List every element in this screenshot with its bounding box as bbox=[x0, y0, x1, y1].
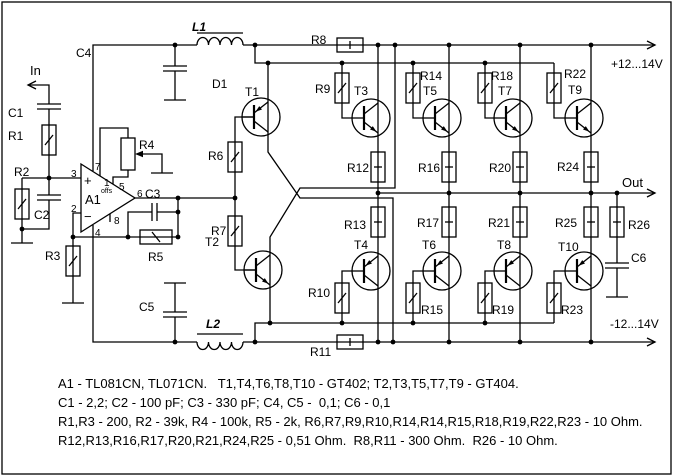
label-t9: T9 bbox=[568, 83, 582, 97]
label-r10: R10 bbox=[308, 286, 330, 300]
opamp-pin4: 4 bbox=[95, 228, 101, 239]
label-r24: R24 bbox=[557, 160, 579, 174]
amplifier-schematic: In Out +12...14V -12...14V C1 R1 R2 C2 R… bbox=[0, 0, 673, 476]
label-c6: C6 bbox=[631, 251, 647, 265]
label-r14: R14 bbox=[420, 69, 442, 83]
label-r1: R1 bbox=[8, 129, 24, 143]
opamp-pin3: 3 bbox=[71, 169, 77, 180]
parts-list-line1: A1 - TL081CN, TL071CN. T1,T4,T6,T8,T10 -… bbox=[58, 376, 519, 391]
label-a1: A1 bbox=[85, 192, 101, 207]
label-r22: R22 bbox=[564, 67, 586, 81]
label-t3: T3 bbox=[354, 84, 368, 98]
label-r5: R5 bbox=[148, 250, 164, 264]
label-r13: R13 bbox=[344, 218, 366, 232]
label-c1: C1 bbox=[8, 106, 24, 120]
label-r18: R18 bbox=[491, 69, 513, 83]
input-port-label: In bbox=[30, 63, 41, 78]
label-t6: T6 bbox=[422, 238, 436, 252]
label-r25: R25 bbox=[555, 216, 577, 230]
label-t5: T5 bbox=[423, 84, 437, 98]
label-r20: R20 bbox=[489, 161, 511, 175]
negative-supply-label: -12...14V bbox=[610, 317, 659, 331]
output-port-label: Out bbox=[622, 175, 643, 190]
opamp-pin6: 6 bbox=[137, 189, 143, 200]
label-r23: R23 bbox=[561, 303, 583, 317]
label-l1: L1 bbox=[192, 20, 206, 34]
opamp-pin5: 5 bbox=[119, 182, 125, 193]
label-r4: R4 bbox=[139, 138, 155, 152]
label-l2: L2 bbox=[206, 317, 220, 331]
label-r26: R26 bbox=[628, 218, 650, 232]
parts-list-line4: R12,R13,R16,R17,R20,R21,R24,R25 - 0,51 O… bbox=[58, 433, 558, 448]
label-r15: R15 bbox=[421, 303, 443, 317]
label-r17: R17 bbox=[417, 216, 439, 230]
label-r8: R8 bbox=[311, 33, 327, 47]
label-r16: R16 bbox=[418, 161, 440, 175]
label-r21: R21 bbox=[488, 216, 510, 230]
label-r3: R3 bbox=[45, 249, 61, 263]
label-c2: C2 bbox=[34, 208, 50, 222]
label-r9: R9 bbox=[315, 82, 331, 96]
label-t7: T7 bbox=[498, 84, 512, 98]
schematic-page: In Out +12...14V -12...14V C1 R1 R2 C2 R… bbox=[0, 0, 673, 476]
label-t2: T2 bbox=[205, 235, 219, 249]
opamp-pin2: 2 bbox=[71, 204, 77, 215]
label-c3: C3 bbox=[145, 187, 161, 201]
parts-list-line3: R1,R3 - 200, R2 - 39k, R4 - 100k, R5 - 2… bbox=[58, 414, 643, 429]
label-d1: D1 bbox=[212, 77, 228, 91]
label-t8: T8 bbox=[497, 238, 511, 252]
opamp-pin7: 7 bbox=[95, 162, 101, 173]
opamp-pin8: 8 bbox=[114, 216, 120, 227]
parts-list-line2: C1 - 2,2; C2 - 100 pF; C3 - 330 pF; C4, … bbox=[58, 395, 390, 410]
label-c5: C5 bbox=[139, 300, 155, 314]
label-r19: R19 bbox=[492, 303, 514, 317]
label-r12: R12 bbox=[347, 161, 369, 175]
label-r6: R6 bbox=[208, 149, 224, 163]
label-c4: C4 bbox=[76, 46, 92, 60]
opamp-minus-sign: − bbox=[84, 209, 92, 224]
label-r11: R11 bbox=[310, 345, 331, 359]
label-t4: T4 bbox=[354, 238, 368, 252]
label-t10: T10 bbox=[558, 240, 579, 254]
label-r2: R2 bbox=[14, 165, 30, 179]
opamp-offset-label: offs bbox=[101, 188, 113, 195]
positive-supply-label: +12...14V bbox=[611, 57, 663, 71]
opamp-plus-sign: + bbox=[84, 173, 92, 188]
label-t1: T1 bbox=[245, 85, 259, 99]
